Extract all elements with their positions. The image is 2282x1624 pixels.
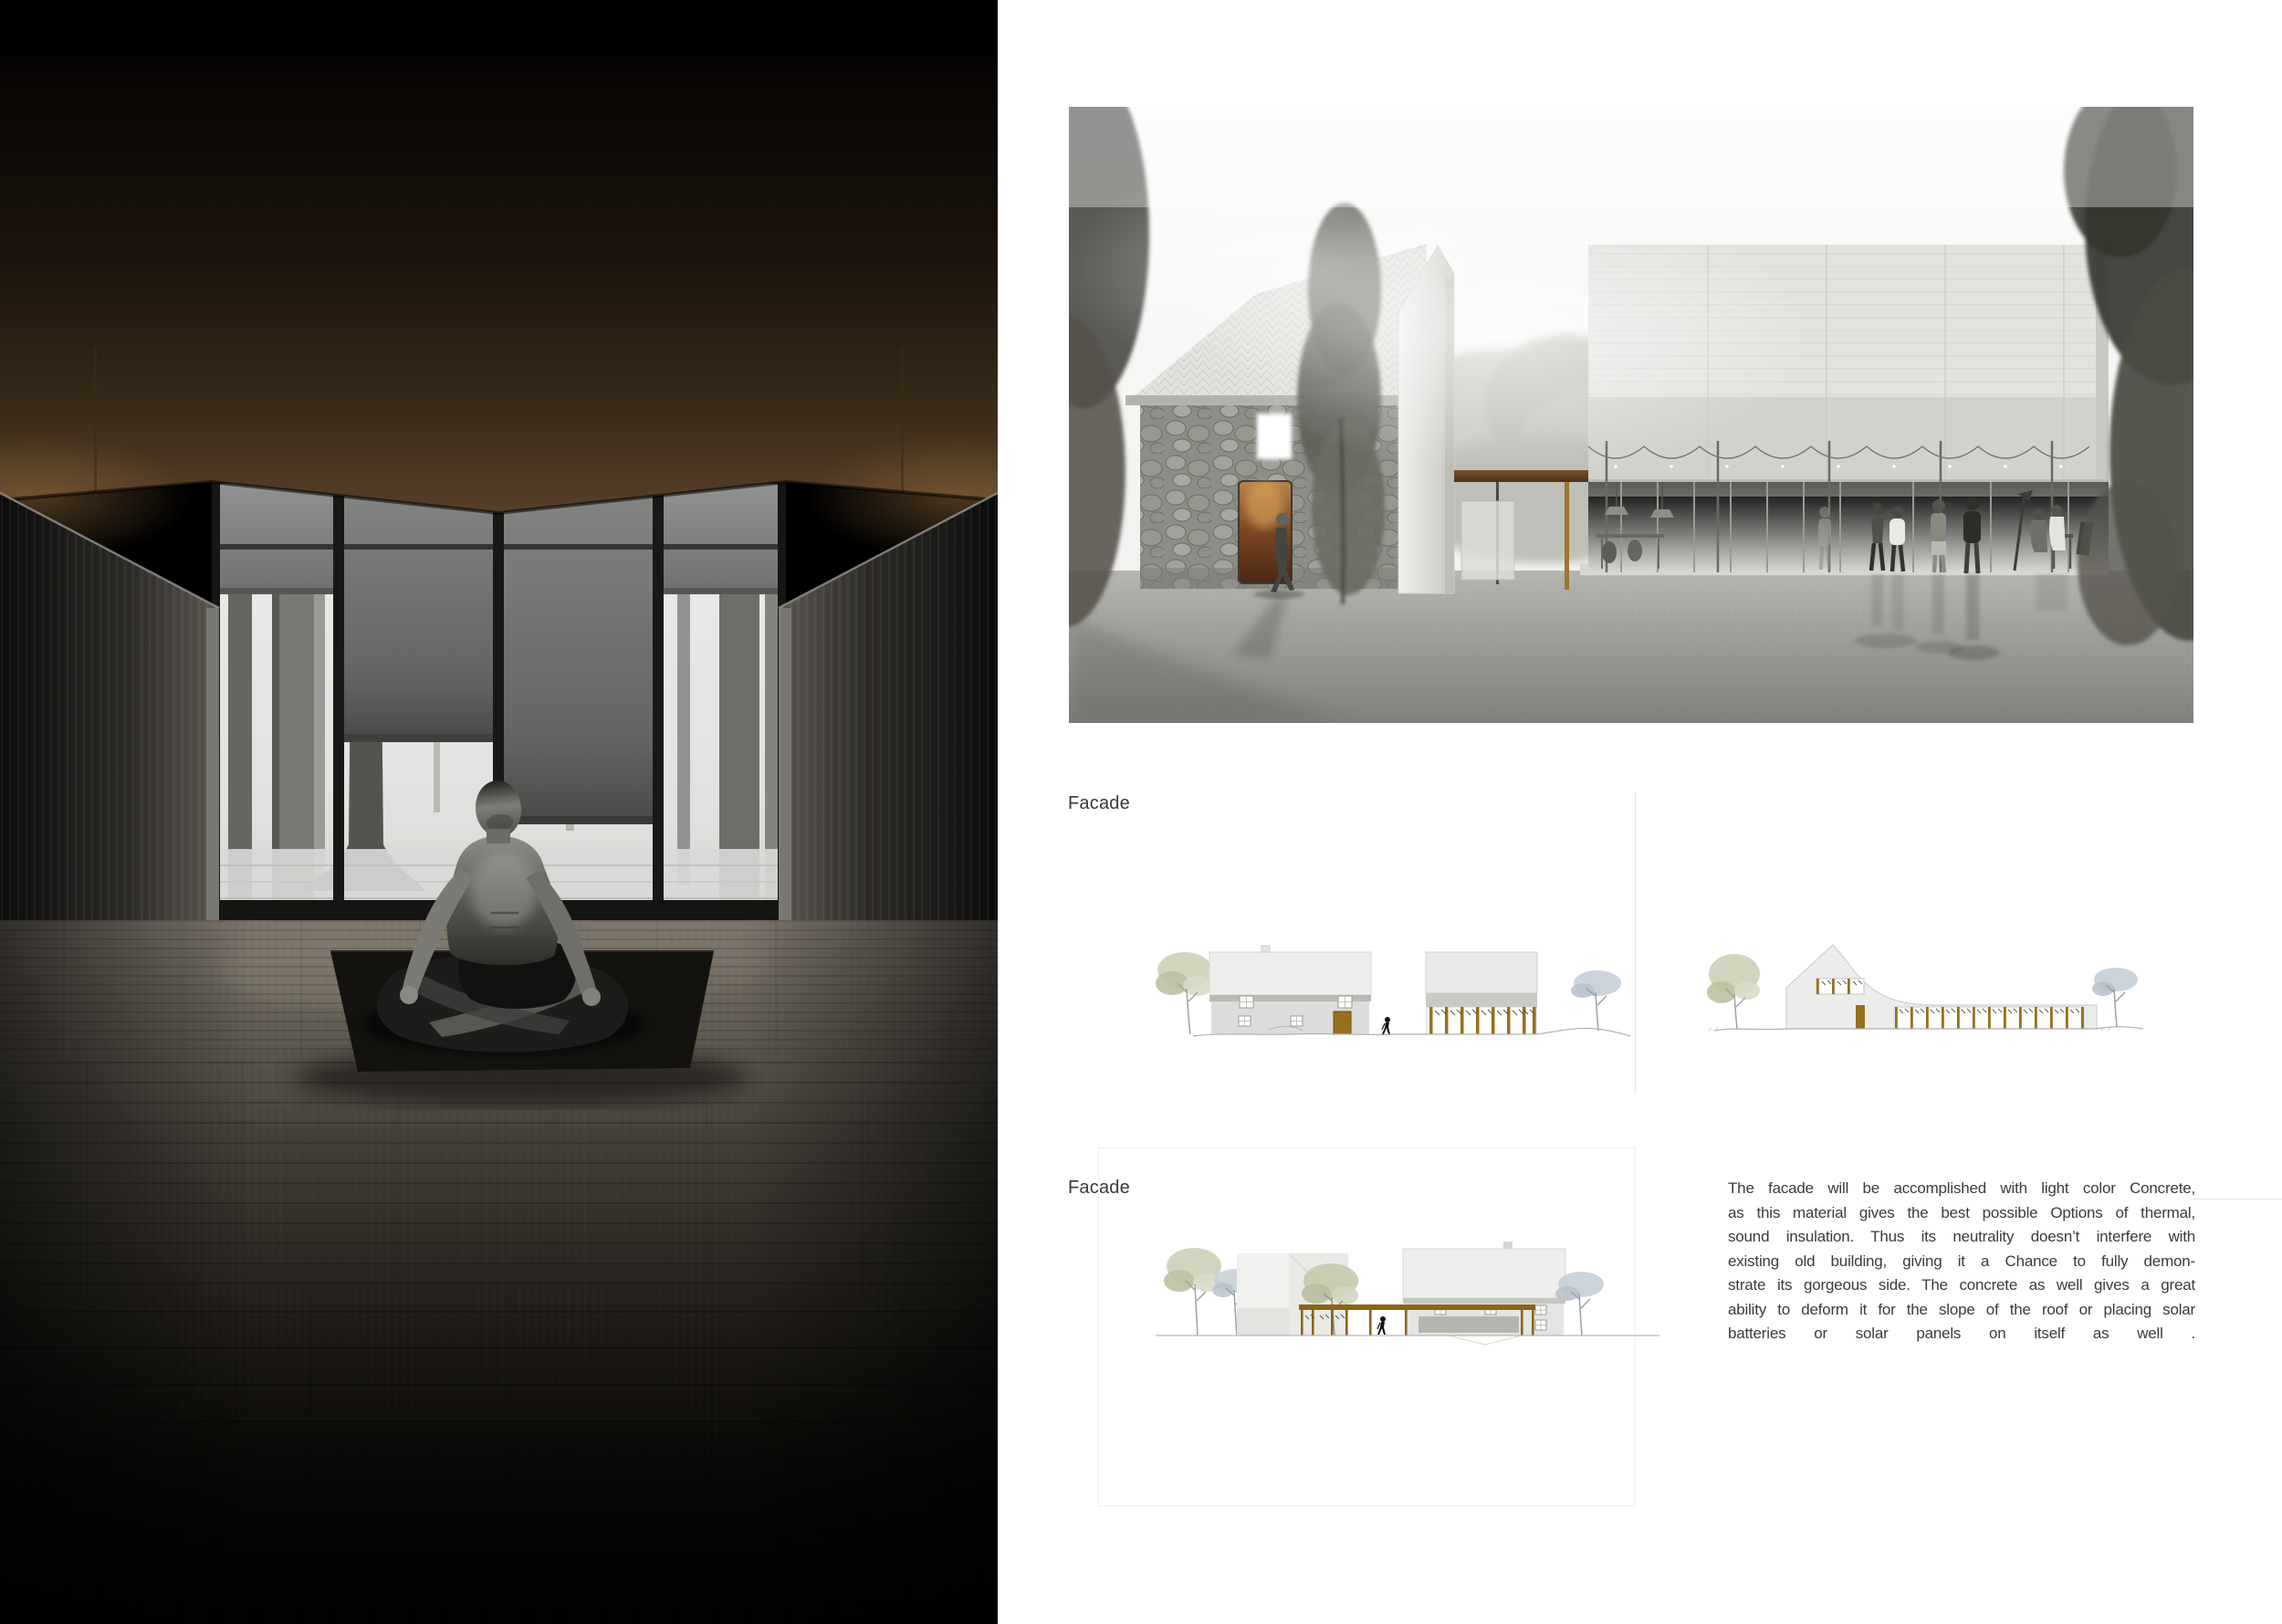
wood-door xyxy=(1334,1011,1351,1034)
person-scale-figure xyxy=(1382,1017,1390,1034)
window-band xyxy=(1894,1007,2084,1029)
interior-yoga-photo xyxy=(0,0,998,1624)
text-line: batteries or solar panels on itself as w… xyxy=(1728,1322,2195,1346)
wood-door xyxy=(1856,1005,1865,1029)
text-line: The facade will be accomplished with lig… xyxy=(1728,1177,2195,1201)
tree-blue xyxy=(1571,970,1621,1031)
text-line: sound insulation. Thus its neutrality do… xyxy=(1728,1225,2195,1250)
exterior-render-image xyxy=(1069,107,2193,723)
text-line: ability to deform it for the slope of th… xyxy=(1728,1298,2195,1323)
facade-description-text: The facade will be accomplished with lig… xyxy=(1728,1177,2195,1346)
facade-drawing-old-house xyxy=(1152,936,1636,1059)
text-line: as this material gives the best possible… xyxy=(1728,1201,2195,1226)
bronze-ceiling xyxy=(0,0,998,561)
margin-rule-line xyxy=(2193,1199,2282,1200)
lawn xyxy=(1069,571,2193,723)
curved-barn-elevation xyxy=(1786,945,2097,1029)
gable-windows xyxy=(1816,979,1864,994)
new-building-elevation xyxy=(1426,952,1537,1034)
facade-drawing-site-elevation xyxy=(1152,1228,1663,1365)
tree-green xyxy=(1156,952,1212,1034)
person-scale-figure xyxy=(1377,1316,1386,1335)
text-line: strate its gorgeous side. The concrete a… xyxy=(1728,1273,2195,1298)
exterior-render xyxy=(1069,107,2193,723)
tree-blue xyxy=(2092,968,2138,1027)
old-house-elevation xyxy=(1403,1242,1565,1345)
tree-green xyxy=(1707,954,1760,1029)
facade-drawing-curved-barn xyxy=(1707,936,2145,1059)
old-house-elevation xyxy=(1209,946,1371,1034)
interior-scene xyxy=(0,0,998,1624)
gold-post xyxy=(1565,482,1569,590)
portfolio-page: Facade Facade xyxy=(0,0,2282,1624)
text-line: existing old building, giving it a Chanc… xyxy=(1728,1250,2195,1274)
facade-label-1: Facade xyxy=(1068,793,1130,814)
